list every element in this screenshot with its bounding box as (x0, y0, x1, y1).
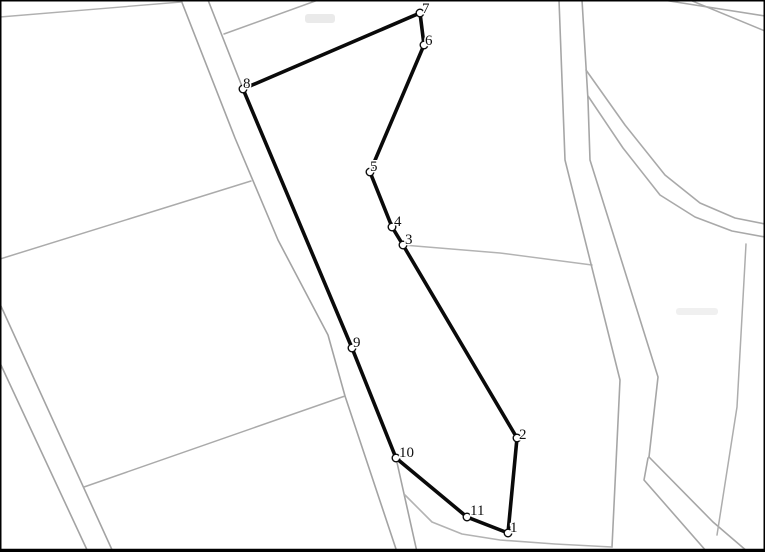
vertex-label-10: 10 (399, 445, 414, 461)
faint-smudge-right (676, 308, 718, 315)
vertex-label-11: 11 (470, 503, 484, 519)
vertex-label-4: 4 (394, 214, 402, 230)
map-viewport[interactable]: 1234567891011 (0, 0, 765, 552)
vertex-label-1: 1 (510, 520, 518, 536)
vertex-label-9: 9 (353, 335, 361, 351)
vertex-label-8: 8 (243, 76, 251, 92)
map-canvas[interactable]: 1234567891011 (0, 0, 765, 552)
vertex-label-6: 6 (425, 33, 433, 49)
vertex-label-7: 7 (422, 1, 430, 17)
vertex-label-3: 3 (405, 232, 413, 248)
vertex-label-2: 2 (519, 427, 527, 443)
faint-smudge-top (305, 14, 335, 23)
map-background (0, 0, 765, 552)
vertex-label-5: 5 (370, 159, 378, 175)
